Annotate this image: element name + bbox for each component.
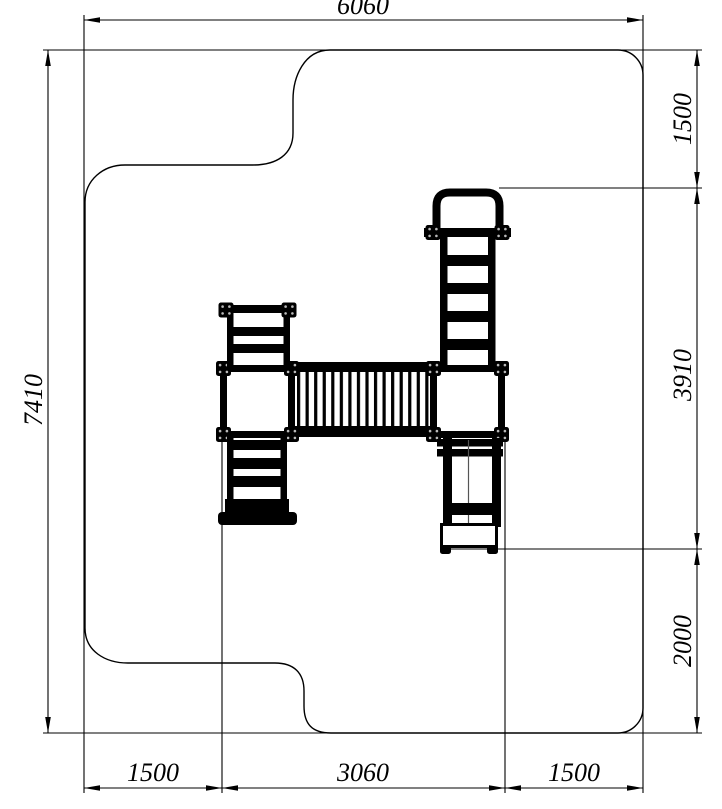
dim-label-top: 6060	[337, 0, 389, 20]
slide	[437, 438, 503, 554]
left-platform	[216, 361, 299, 442]
technical-drawing: 6060 7410 1500 3910 2000 1500 3060 1500	[0, 0, 722, 809]
dim-label-bottom-left: 1500	[127, 758, 179, 787]
drawing-canvas: 6060 7410 1500 3910 2000 1500 3060 1500	[0, 0, 722, 809]
slide-end-box	[442, 525, 497, 547]
small-ladder	[219, 303, 297, 369]
dim-label-right-middle: 3910	[668, 349, 697, 402]
tall-ladder	[424, 193, 511, 369]
dim-label-right-top: 1500	[668, 93, 697, 145]
dim-label-right-bottom: 2000	[668, 615, 697, 667]
handrail-arch	[437, 193, 500, 233]
right-platform	[426, 361, 509, 442]
dim-label-left: 7410	[19, 374, 48, 426]
dim-label-bottom-middle: 3060	[336, 758, 389, 787]
dim-label-bottom-right: 1500	[548, 758, 600, 787]
bridge	[295, 362, 430, 437]
stairs	[218, 434, 297, 525]
playground-structure	[216, 193, 511, 555]
